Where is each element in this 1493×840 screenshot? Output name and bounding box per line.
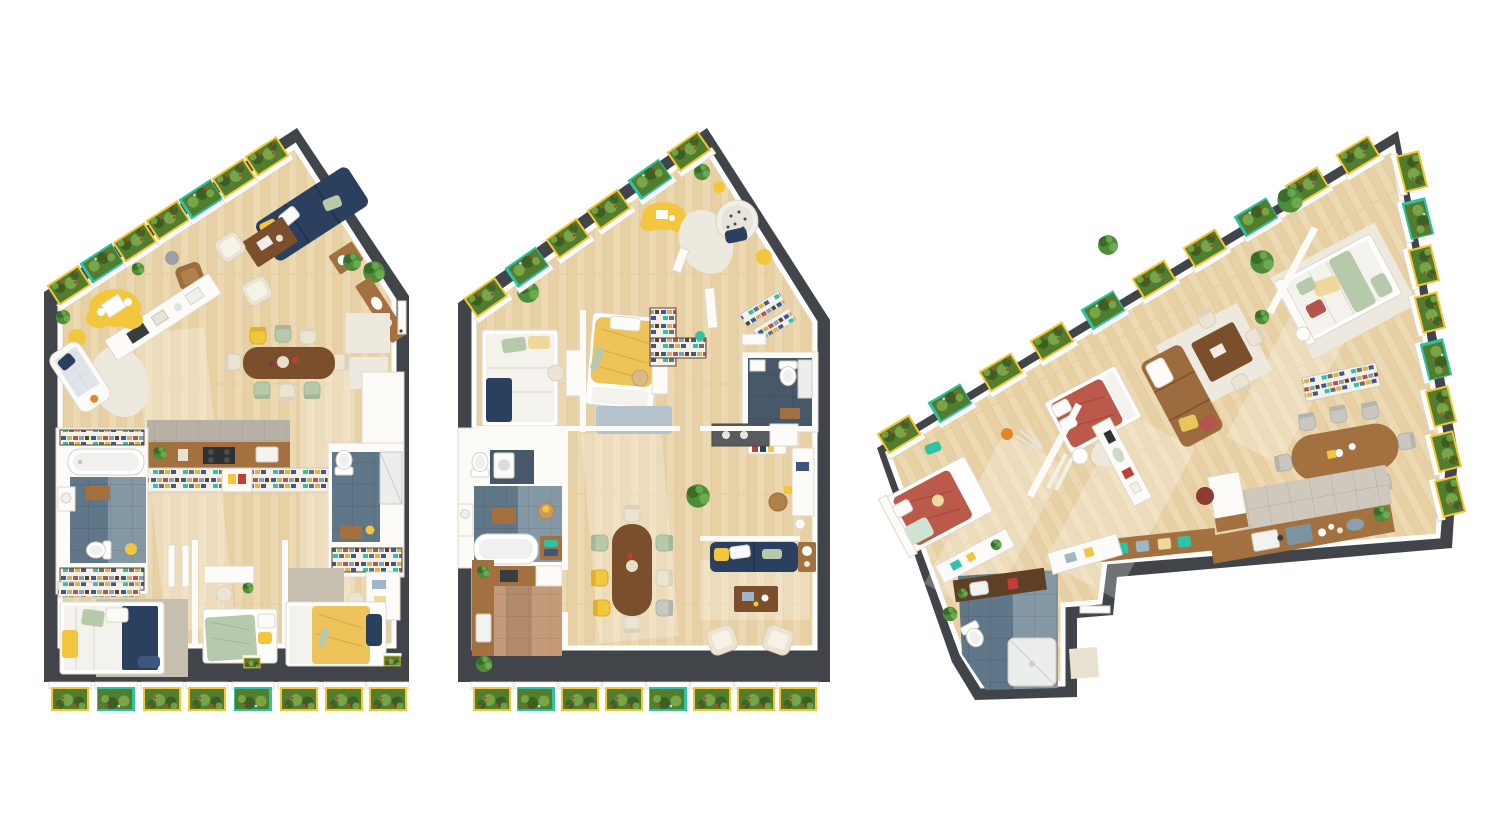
- washbasin: [750, 360, 765, 371]
- pillow-navy: [366, 614, 382, 646]
- kitchen-counter: [147, 442, 290, 468]
- sink: [1251, 529, 1280, 551]
- bowl-teal: [695, 331, 705, 341]
- desk: [792, 448, 814, 516]
- shoe-shelf: [650, 338, 706, 358]
- pillow-yellow: [528, 336, 550, 349]
- plant: [132, 263, 145, 276]
- entry-door: [398, 301, 406, 334]
- bathroom-small: [742, 352, 818, 432]
- shower: [798, 360, 812, 398]
- side-table: [798, 542, 816, 572]
- floorplan-3: [848, 125, 1468, 735]
- plant: [56, 310, 70, 324]
- desk-chair: [216, 586, 232, 602]
- plant: [477, 566, 490, 579]
- pillow-white: [729, 545, 750, 560]
- pillow-sage: [762, 549, 782, 559]
- floorplan-1: [40, 125, 435, 725]
- bathroom-right: [328, 443, 404, 577]
- blanket-yellow: [62, 630, 78, 658]
- bath-mat: [780, 408, 800, 419]
- plant: [153, 446, 167, 460]
- plant: [943, 607, 957, 621]
- bed-double-yellow: [286, 602, 386, 666]
- wall: [562, 612, 568, 648]
- plant: [343, 253, 361, 271]
- plant: [476, 656, 492, 672]
- floor-plant-box: [243, 655, 262, 668]
- box-red: [1007, 578, 1018, 590]
- toilet: [87, 541, 112, 559]
- bed-double: [482, 330, 558, 426]
- plant: [686, 484, 709, 507]
- plant: [1255, 310, 1269, 324]
- shower: [1008, 638, 1056, 686]
- laptop: [796, 462, 809, 471]
- wall: [562, 430, 568, 570]
- balcony-planters-bottom: [49, 682, 409, 711]
- bed-single: [203, 609, 277, 663]
- pillow-white: [106, 608, 128, 622]
- door-leaf: [182, 545, 189, 587]
- toilet: [779, 361, 797, 386]
- ball-orange: [1001, 428, 1013, 440]
- pillow-yellow: [714, 548, 729, 561]
- cabinet: [536, 566, 562, 586]
- door-handle: [399, 329, 402, 332]
- bedroom-3: [286, 568, 401, 666]
- cooktop: [203, 447, 235, 464]
- coffee-table: [734, 586, 778, 612]
- floorplan-2: [455, 125, 845, 725]
- washbasin-column: [458, 504, 473, 536]
- pillow-sage: [81, 609, 105, 628]
- balcony-plant: [1277, 187, 1302, 212]
- plant: [1250, 250, 1273, 273]
- ball-lamp: [165, 251, 179, 265]
- bench: [742, 334, 766, 345]
- floorplan-collage: [0, 0, 1493, 840]
- mat: [346, 313, 390, 353]
- balcony-plant: [1098, 235, 1118, 255]
- toilet: [335, 451, 353, 476]
- oven: [500, 570, 518, 582]
- bath-mat: [492, 508, 516, 524]
- desk-chair: [548, 365, 564, 381]
- blanket-navy: [486, 378, 512, 422]
- bed-double: [60, 602, 164, 674]
- floor-lamp: [713, 181, 725, 193]
- pot-white: [1072, 448, 1088, 464]
- bedside-table: [1296, 327, 1310, 341]
- rattan-chair: [632, 370, 648, 386]
- pillow-white: [610, 316, 641, 332]
- pillow-white: [258, 614, 275, 628]
- dining-table: [243, 347, 335, 379]
- bath-mat: [86, 486, 110, 500]
- dining-table: [612, 524, 652, 616]
- plant: [243, 583, 254, 594]
- open-shelf-colorful: [147, 468, 335, 492]
- sink: [256, 447, 278, 462]
- shoe-shelf: [60, 430, 144, 445]
- desk: [204, 566, 254, 583]
- doormat: [1069, 647, 1099, 679]
- sticky-note: [784, 486, 792, 494]
- bathtub: [68, 449, 144, 475]
- bathroom-with-tub: [458, 428, 566, 568]
- bathtub: [474, 534, 538, 564]
- sink: [476, 614, 491, 642]
- wardrobe: [58, 582, 140, 597]
- bath-mat: [340, 526, 362, 539]
- rolled-blanket: [138, 656, 160, 668]
- pillow-yellow: [258, 632, 272, 644]
- toilet: [471, 453, 489, 478]
- pouf-maroon: [1196, 487, 1214, 505]
- chair-with-jacket: [769, 493, 787, 511]
- floor-lamp: [795, 519, 805, 529]
- entry-door: [1080, 606, 1110, 613]
- pouf-yellow: [756, 249, 772, 265]
- basket-yellow: [125, 543, 137, 555]
- basket-yellow: [366, 526, 375, 535]
- sink: [969, 581, 989, 596]
- balcony-planters-bottom: [471, 682, 819, 711]
- wall: [700, 536, 800, 541]
- floor-plant-box: [383, 653, 402, 666]
- sofa-navy: [710, 542, 798, 572]
- bathroom-left: [56, 428, 148, 594]
- door-leaf: [168, 545, 175, 587]
- tub-tray: [540, 536, 562, 560]
